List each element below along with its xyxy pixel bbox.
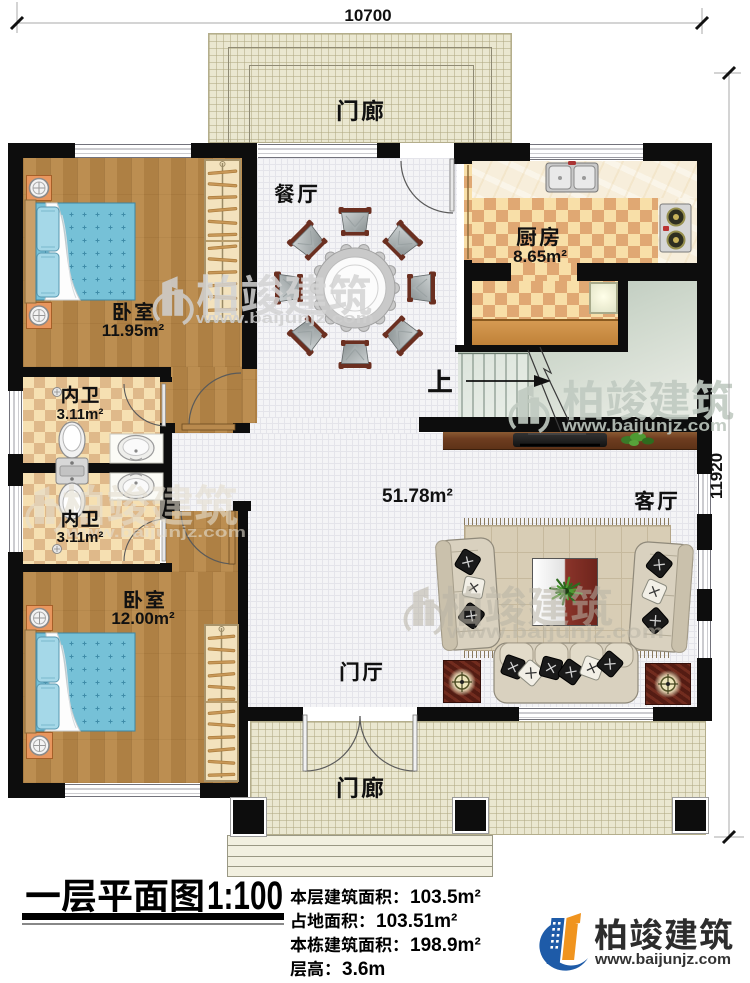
svg-text:198.9m²: 198.9m² <box>410 935 481 956</box>
svg-text:103.51m²: 103.51m² <box>376 911 457 932</box>
svg-text:11920: 11920 <box>707 453 726 499</box>
svg-text:10700: 10700 <box>344 6 391 25</box>
svg-text:3.6m: 3.6m <box>342 959 385 980</box>
svg-text:12.00m²: 12.00m² <box>111 609 175 628</box>
svg-text:3.11m²: 3.11m² <box>57 529 104 546</box>
svg-text:103.5m²: 103.5m² <box>410 887 481 908</box>
svg-text:www.baijunjz.com: www.baijunjz.com <box>195 310 374 327</box>
svg-text:www.baijunjz.com: www.baijunjz.com <box>594 952 731 968</box>
svg-text:8.65m²: 8.65m² <box>513 247 567 266</box>
svg-text:www.baijunjz.com: www.baijunjz.com <box>446 622 664 643</box>
svg-text:1:100: 1:100 <box>207 874 283 918</box>
svg-text:3.11m²: 3.11m² <box>57 406 104 423</box>
svg-text:www.baijunjz.com: www.baijunjz.com <box>561 416 727 435</box>
svg-text:51.78m²: 51.78m² <box>382 486 453 507</box>
svg-text:11.95m²: 11.95m² <box>102 321 165 340</box>
